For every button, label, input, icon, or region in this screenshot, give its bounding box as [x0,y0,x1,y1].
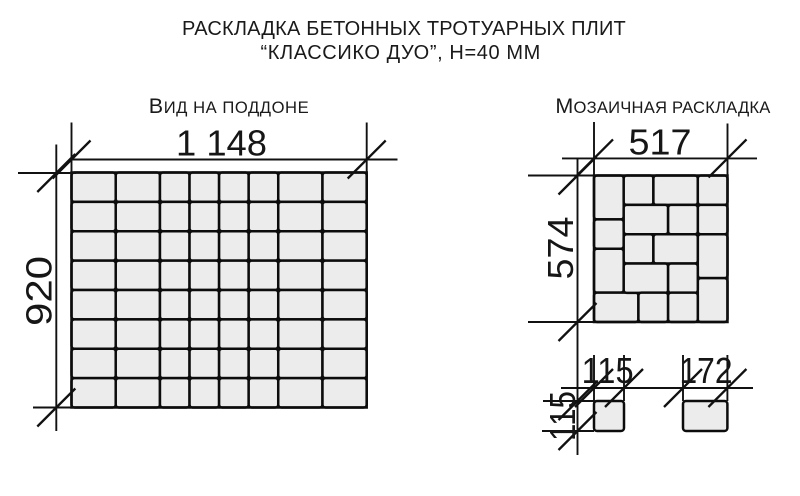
svg-text:172: 172 [680,350,733,391]
svg-text:574: 574 [540,217,581,280]
svg-text:115: 115 [542,391,583,441]
svg-text:920: 920 [19,256,60,326]
svg-text:517: 517 [629,122,692,163]
svg-text:1 148: 1 148 [176,123,267,164]
svg-text:115: 115 [582,350,634,391]
